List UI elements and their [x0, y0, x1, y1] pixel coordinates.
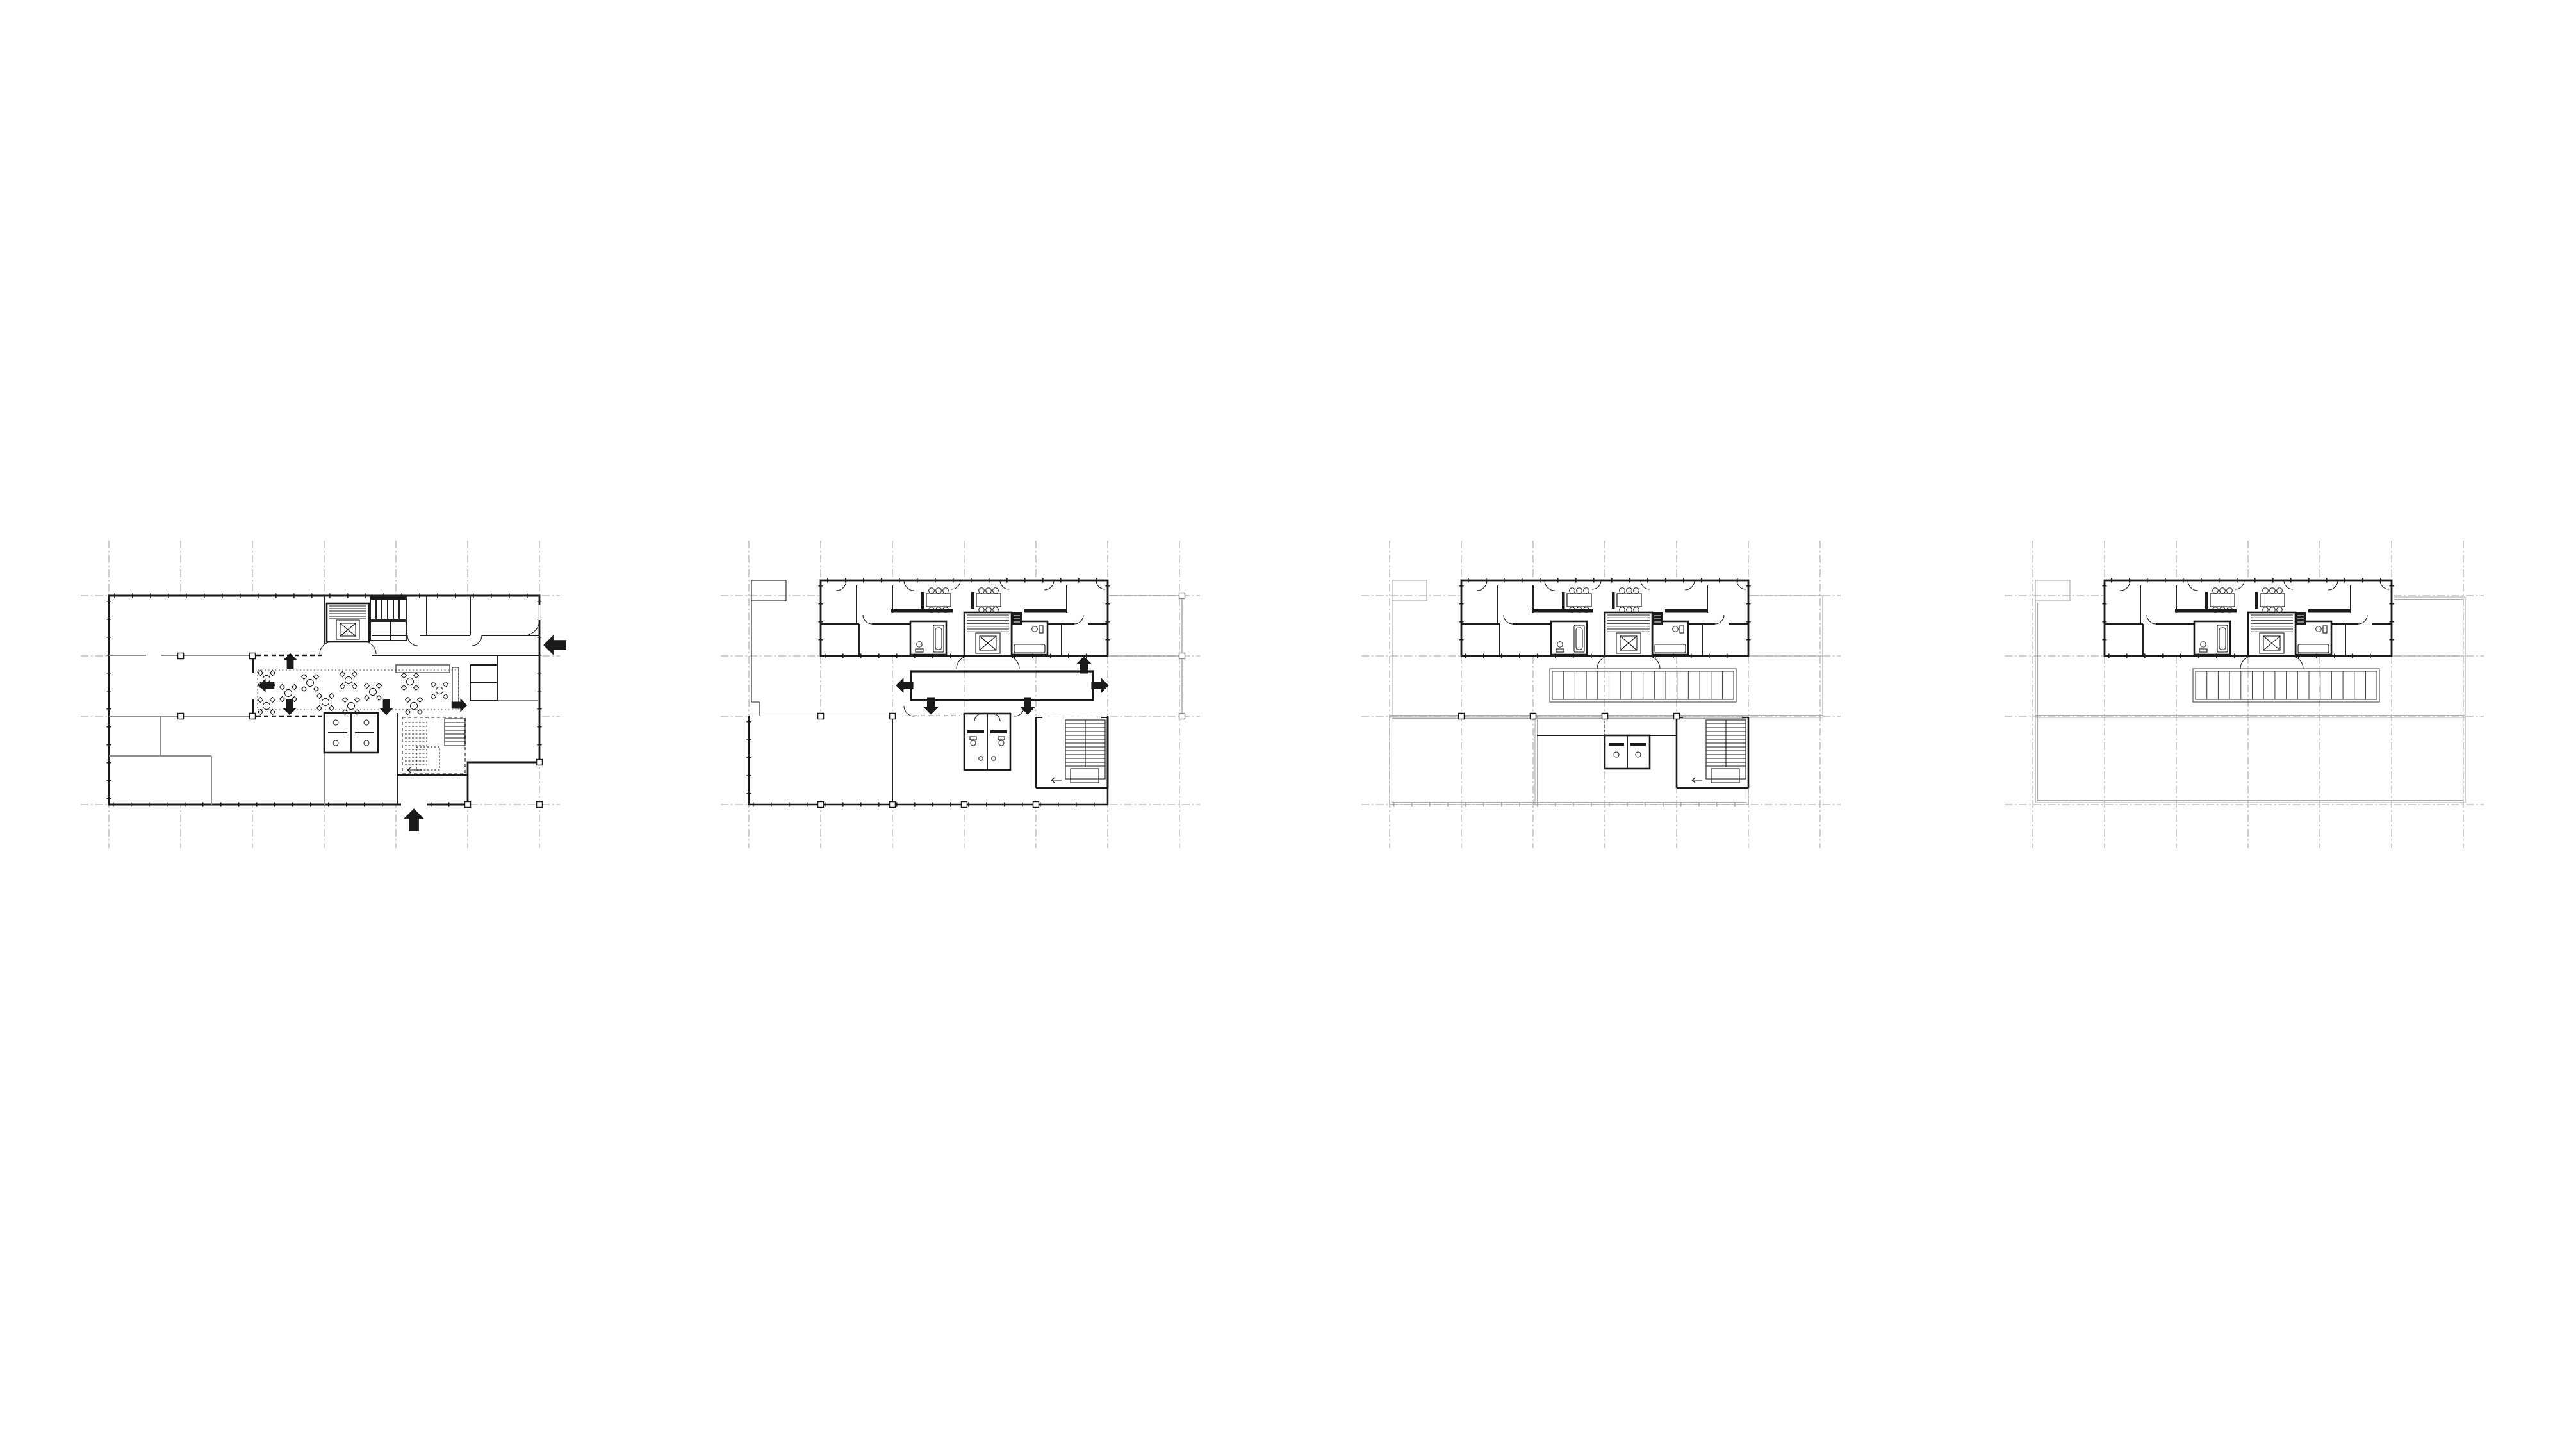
floor-plan-sheet	[0, 0, 2562, 1456]
building-level-3	[1459, 580, 1749, 788]
building-level-1	[109, 596, 566, 831]
floor-plan-1	[70, 519, 570, 878]
void-atrium	[896, 656, 1108, 714]
roof-tab	[751, 580, 786, 601]
apartment-bar	[821, 580, 1108, 669]
roof-tab	[1392, 580, 1427, 601]
floor-plan-4	[1994, 519, 2494, 878]
roof-partition	[1535, 716, 1538, 805]
building-level-2	[749, 580, 1185, 808]
lower-block	[749, 706, 1108, 808]
stair	[1677, 717, 1748, 788]
apartment-bar	[2105, 580, 2392, 669]
entrance-arrow-east	[543, 635, 566, 655]
toilets	[1605, 735, 1650, 769]
floor-plan-2	[710, 519, 1210, 878]
skylight	[1550, 669, 1736, 702]
building-level-4	[2105, 580, 2392, 702]
skylight	[2193, 669, 2379, 702]
west-floor-edge	[751, 601, 759, 716]
east-terrace	[1108, 593, 1185, 719]
roof-tab	[2035, 580, 2070, 601]
floor-plan-3	[1351, 519, 1851, 878]
entrance-arrow-south	[404, 808, 424, 831]
apartment-bar	[1461, 580, 1748, 669]
lower-roof-outline	[1390, 716, 1748, 805]
